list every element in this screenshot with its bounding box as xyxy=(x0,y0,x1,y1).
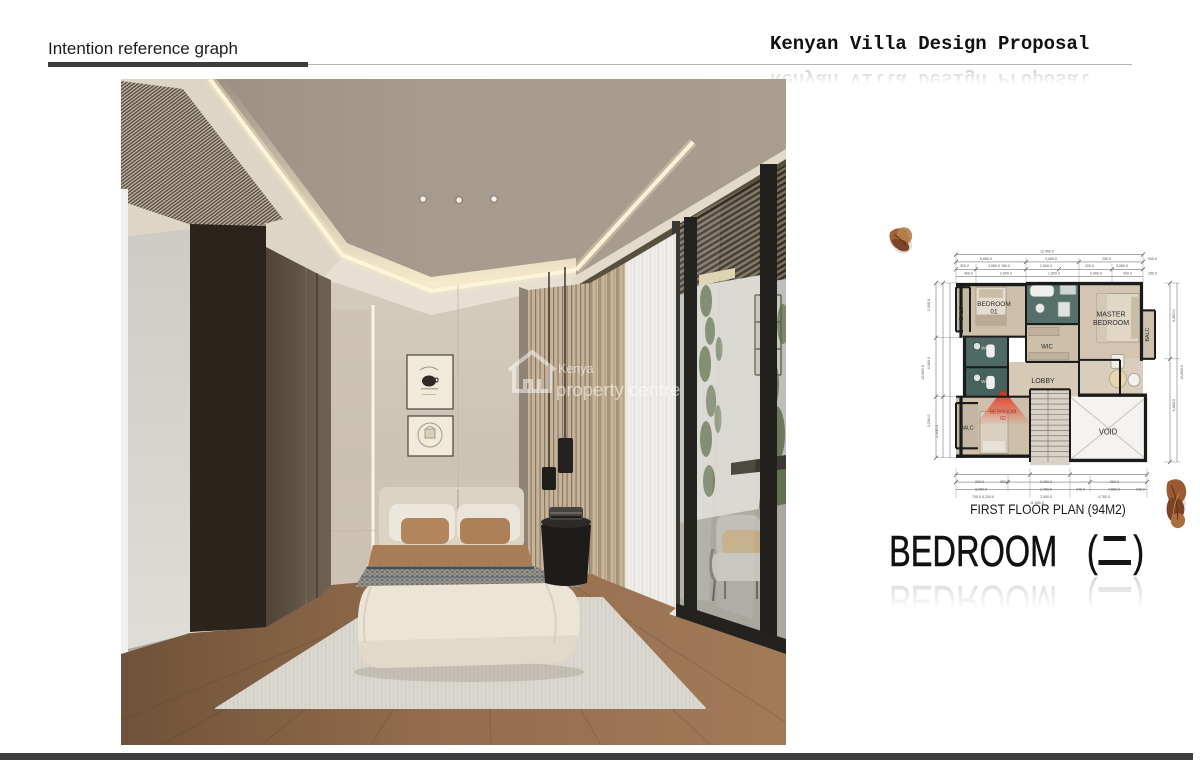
svg-text:200.0: 200.0 xyxy=(1136,487,1145,491)
svg-text:BALC: BALC xyxy=(960,425,973,431)
svg-text:200.0: 200.0 xyxy=(975,480,984,484)
svg-text:300.0: 300.0 xyxy=(1000,480,1009,484)
svg-text:2,200.0: 2,200.0 xyxy=(935,425,939,438)
svg-text:WC: WC xyxy=(981,345,989,350)
svg-text:4,560.0: 4,560.0 xyxy=(1108,487,1120,491)
svg-text:WIC: WIC xyxy=(1041,343,1053,350)
svg-text:BEDROOM: BEDROOM xyxy=(977,301,1011,308)
svg-text:2,400.0: 2,400.0 xyxy=(1040,480,1052,484)
svg-text:3,300.0: 3,300.0 xyxy=(927,299,931,312)
svg-text:10,860.0: 10,860.0 xyxy=(1180,365,1184,380)
svg-text:5,360.0: 5,360.0 xyxy=(1172,309,1176,322)
svg-text:2,060.0: 2,060.0 xyxy=(1090,271,1102,275)
svg-text:BEDROOM: BEDROOM xyxy=(990,409,1017,415)
svg-text:2,000.0: 2,000.0 xyxy=(1000,271,1012,275)
svg-text:3,200.0: 3,200.0 xyxy=(927,415,931,428)
svg-text:VOID: VOID xyxy=(1099,427,1118,436)
svg-text:MASTER: MASTER xyxy=(1096,311,1125,319)
svg-text:240.0: 240.0 xyxy=(1076,487,1085,491)
svg-text:4,460.0: 4,460.0 xyxy=(1172,399,1176,412)
svg-text:300.0: 300.0 xyxy=(960,264,969,268)
svg-text:2,900.0: 2,900.0 xyxy=(1040,495,1052,499)
svg-text:12,450.0: 12,450.0 xyxy=(1040,249,1054,253)
svg-text:02: 02 xyxy=(1000,416,1006,422)
svg-text:Kenya: Kenya xyxy=(558,362,593,376)
svg-text:01: 01 xyxy=(990,308,998,315)
svg-text:BEDROOM: BEDROOM xyxy=(1093,319,1129,327)
svg-text:property centre: property centre xyxy=(556,379,680,400)
svg-text:200.0: 200.0 xyxy=(1110,480,1119,484)
svg-text:3,060.0 150.0: 3,060.0 150.0 xyxy=(988,264,1010,268)
svg-text:200.0: 200.0 xyxy=(1102,257,1111,261)
svg-text:WC: WC xyxy=(981,379,989,384)
svg-text:3,060.0: 3,060.0 xyxy=(975,487,987,491)
svg-text:BALC: BALC xyxy=(1145,327,1151,341)
svg-text:BALC: BALC xyxy=(959,306,965,320)
svg-text:4,060.0: 4,060.0 xyxy=(927,357,931,370)
svg-text:2,400.0: 2,400.0 xyxy=(1040,487,1052,491)
svg-text:700.0 5,200.0: 700.0 5,200.0 xyxy=(972,495,994,499)
svg-text:3,060.0: 3,060.0 xyxy=(1045,257,1057,261)
svg-text:10,860.0: 10,860.0 xyxy=(921,365,925,380)
svg-text:4,700.0: 4,700.0 xyxy=(1098,495,1110,499)
svg-text:400.0: 400.0 xyxy=(964,271,973,275)
svg-text:200.0: 200.0 xyxy=(1085,264,1094,268)
svg-text:200.0: 200.0 xyxy=(1123,271,1132,275)
svg-text:2,060.0: 2,060.0 xyxy=(1040,264,1052,268)
svg-text:1,500.0: 1,500.0 xyxy=(1048,271,1060,275)
svg-text:6,660.0: 6,660.0 xyxy=(980,257,992,261)
svg-text:250.0: 250.0 xyxy=(1148,271,1157,275)
svg-text:3,060.0: 3,060.0 xyxy=(1116,264,1128,268)
svg-text:LOBBY: LOBBY xyxy=(1031,377,1055,385)
svg-text:900.0: 900.0 xyxy=(1148,257,1157,261)
